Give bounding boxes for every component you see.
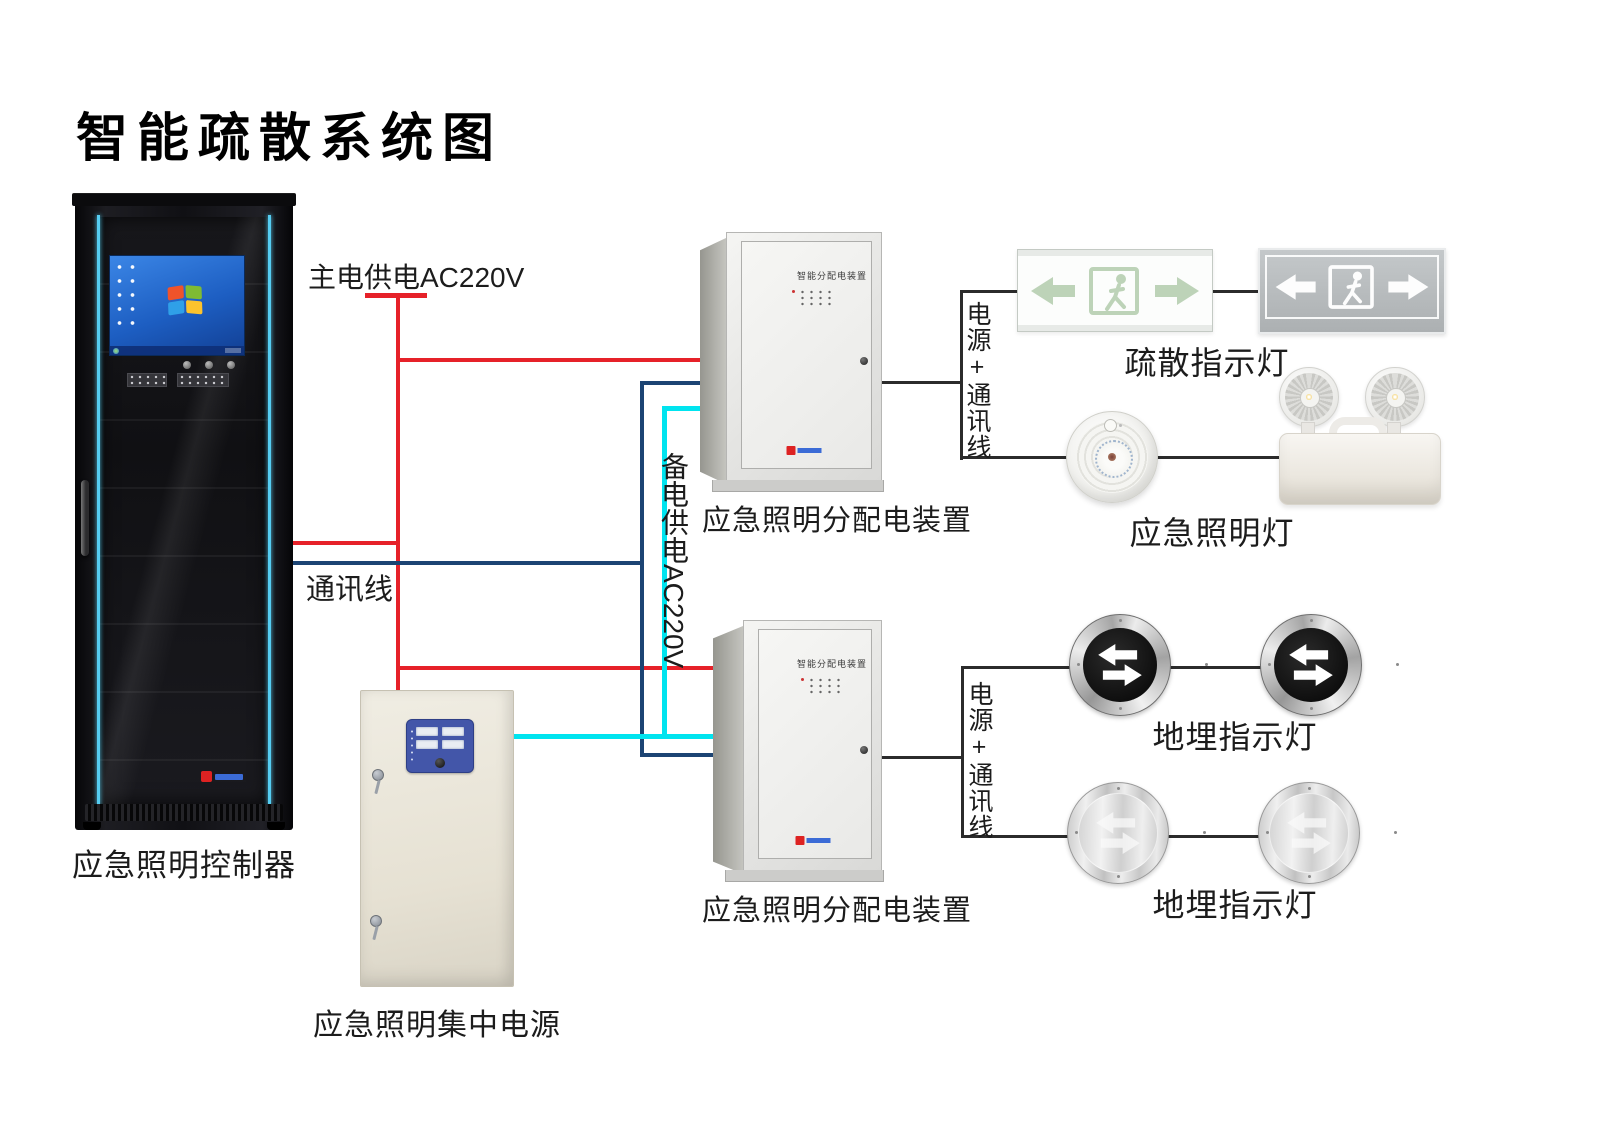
panel-knob-3: [227, 361, 235, 369]
ground-light-black-2: [1260, 614, 1362, 716]
panel-display-1: [416, 727, 438, 736]
desktop-icons: [113, 260, 140, 332]
exit-sign-1: [1017, 249, 1213, 332]
exit-sign-1-glyphs: [1027, 263, 1203, 319]
box2-door-knob: [860, 746, 868, 754]
panel-knob: [435, 758, 445, 768]
arrow-left-icon: [1276, 274, 1316, 299]
box1-side-panel: [700, 238, 726, 484]
box2-side-panel: [713, 626, 743, 874]
cabinet-monitor-screen: [109, 255, 245, 356]
wire-signal-box2-out: [880, 756, 963, 759]
test-button: [1104, 419, 1117, 432]
ground-light-silver-1: [1067, 782, 1169, 884]
power-control-panel: [406, 719, 474, 773]
dist-box-1-label: 应急照明分配电装置: [702, 497, 967, 539]
box2-brand-logo: [795, 836, 830, 845]
cabinet-led-strip-left: [97, 215, 100, 806]
ground-light-label-2: 地埋指示灯: [1150, 880, 1320, 926]
wire-signal-to-exit-sign: [960, 290, 1018, 293]
exit-sign-label: 疏散指示灯: [1122, 338, 1292, 384]
arrow-right-icon: [1388, 274, 1428, 299]
control-display-right: [177, 373, 229, 387]
main-power-wire-label: 主电供电AC220V: [308, 256, 524, 296]
diagram-canvas: 智能疏散系统图 主电供电AC220V 通讯线 备电供电AC220V 电源+通讯线…: [0, 0, 1600, 1140]
cabinet-led-strip-right: [268, 215, 271, 806]
lamp-led-left: [1300, 388, 1320, 408]
central-power-cabinet: [360, 690, 514, 987]
box1-panel-title: 智能分配电装置: [797, 269, 867, 282]
box1-base: [712, 480, 884, 492]
panel-display-4: [442, 740, 464, 749]
door-lock-key-bottom: [370, 915, 382, 927]
wire-comm-trunk: [640, 381, 644, 757]
exit-sign-2: [1258, 248, 1446, 334]
distribution-box-2: 智能分配电装置: [713, 618, 882, 882]
backup-power-wire-label: 备电供电AC220V: [659, 452, 687, 668]
dist-box-2-label: 应急照明分配电装置: [702, 887, 967, 929]
runner-figure: [1345, 272, 1362, 304]
box2-panel-title: 智能分配电装置: [797, 657, 867, 670]
panel-knob-2: [205, 361, 213, 369]
controller-cabinet: [75, 193, 293, 830]
central-power-label: 应急照明集中电源: [312, 1000, 562, 1044]
windows-logo-icon: [167, 285, 204, 316]
comm-wire-label: 通讯线: [306, 566, 393, 608]
double-arrow-icon: [1092, 637, 1148, 693]
ground-light-silver-2: [1258, 782, 1360, 884]
wire-comm-from-controller: [288, 561, 644, 565]
box2-logo-text: [806, 838, 830, 843]
panel-knob-1: [183, 361, 191, 369]
control-display-left: [127, 373, 167, 387]
power-comm-wire-label-2: 电源+通讯线: [966, 681, 991, 840]
runner-figure: [1107, 274, 1126, 309]
box1-door-knob: [860, 357, 868, 365]
start-orb-icon: [113, 348, 119, 354]
power-comm-wire-label-1: 电源+通讯线: [964, 301, 989, 460]
door-lock-key-top: [372, 769, 384, 781]
exit-sign-2-glyphs: [1272, 261, 1432, 313]
brand-logo-mark: [201, 771, 212, 782]
system-tray: [225, 348, 241, 353]
screen-taskbar: [110, 346, 244, 355]
box1-logo-mark: [787, 446, 796, 455]
twin-head-emergency-light: [1277, 367, 1445, 513]
ground-light-label-1: 地埋指示灯: [1150, 712, 1320, 758]
vent-grille: [85, 804, 283, 821]
controller-label: 应急照明控制器: [70, 840, 298, 885]
panel-displays: [416, 727, 464, 751]
arrow-left-icon: [1031, 277, 1075, 305]
box1-indicator-lights: [798, 289, 834, 307]
embossed-arrow-icon: [1281, 805, 1337, 861]
panel-display-2: [442, 727, 464, 736]
wire-signal-sign1-to-sign2: [1211, 290, 1259, 293]
wire-main-power-to-box1: [398, 358, 720, 362]
cabinet-top-cap: [72, 193, 296, 206]
wire-comm-to-box2: [640, 753, 720, 757]
lamp-led-right: [1386, 388, 1406, 408]
brand-logo: [201, 771, 243, 782]
box2-indicator-lights: [807, 677, 843, 695]
wire-main-power-trunk: [396, 295, 400, 692]
cabinet-door-handle: [81, 480, 89, 556]
box2-logo-mark: [795, 836, 804, 845]
box2-front-door: 智能分配电装置: [743, 620, 882, 872]
double-arrow-icon: [1283, 637, 1339, 693]
page-title: 智能疏散系统图: [76, 96, 503, 171]
cabinet-foot-right: [267, 822, 285, 830]
ceiling-emergency-light: [1066, 411, 1158, 503]
emergency-light-label: 应急照明灯: [1122, 508, 1302, 554]
brand-logo-text: [215, 774, 243, 780]
box1-logo-text: [798, 448, 822, 453]
arrow-right-icon: [1155, 277, 1199, 305]
wire-signal-box1-out: [880, 381, 962, 384]
distribution-box-1: 智能分配电装置: [700, 230, 882, 492]
wire-main-power-to-controller: [288, 541, 398, 545]
center-sensor: [1108, 453, 1116, 461]
wire-signal-light1-to-light2: [1150, 456, 1286, 459]
box1-brand-logo: [787, 446, 822, 455]
ground-light-black-1: [1069, 614, 1171, 716]
panel-indicator-dots: [410, 728, 414, 762]
battery-body: [1279, 433, 1441, 505]
box2-base: [725, 870, 884, 882]
panel-display-3: [416, 740, 438, 749]
wire-backup-from-power-cabinet: [509, 734, 720, 739]
box1-front-door: 智能分配电装置: [726, 232, 882, 482]
embossed-arrow-icon: [1090, 805, 1146, 861]
cabinet-foot-left: [83, 822, 101, 830]
wire-signal-trunk-2: [961, 666, 964, 838]
